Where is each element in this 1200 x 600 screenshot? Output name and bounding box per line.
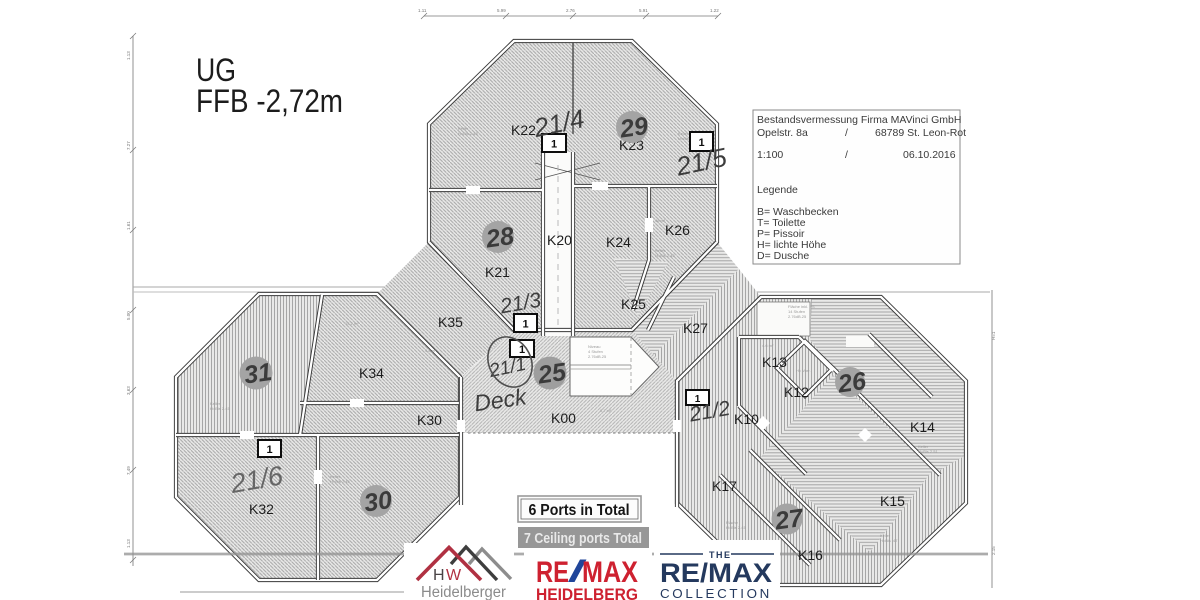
svg-text:RE/MAX: RE/MAX — [660, 558, 772, 588]
svg-text:2.76dB.25: 2.76dB.25 — [788, 314, 807, 319]
svg-text:26: 26 — [835, 367, 869, 399]
svg-text:H= Vorr.: H= Vorr. — [796, 368, 811, 373]
svg-text:2.76dB.25: 2.76dB.25 — [588, 354, 607, 359]
svg-text:K26: K26 — [665, 222, 690, 238]
svg-text:27: 27 — [772, 504, 806, 536]
svg-text:06.10.2016: 06.10.2016 — [903, 149, 956, 161]
svg-text:1.13: 1.13 — [126, 51, 131, 60]
svg-text:1.11: 1.11 — [418, 8, 427, 13]
svg-text:K34: K34 — [359, 365, 384, 381]
svg-text:FFB -2,72m: FFB -2,72m — [196, 83, 343, 119]
svg-text:15.2 m²: 15.2 m² — [345, 321, 359, 326]
svg-text:/: / — [845, 149, 848, 161]
svg-text:K16: K16 — [798, 547, 823, 563]
svg-text:K00: K00 — [551, 410, 576, 426]
svg-text:H=Bis 2.45: H=Bis 2.45 — [726, 525, 746, 530]
svg-text:K10: K10 — [734, 411, 759, 427]
svg-text:H=Bis .47: H=Bis .47 — [880, 538, 898, 543]
svg-text:29: 29 — [617, 112, 650, 144]
svg-text:/: / — [845, 127, 848, 139]
svg-text:K20: K20 — [547, 232, 572, 248]
svg-text:H=Bis 2.51: H=Bis 2.51 — [918, 449, 938, 454]
svg-text:Legende: Legende — [757, 184, 798, 196]
svg-text:K35: K35 — [438, 314, 463, 330]
svg-text:K24: K24 — [606, 234, 631, 250]
svg-text:K13: K13 — [762, 354, 787, 370]
svg-text:K32: K32 — [249, 501, 274, 517]
svg-text:6 Ports in Total: 6 Ports in Total — [529, 502, 630, 519]
svg-text:K14: K14 — [910, 419, 935, 435]
svg-text:1: 1 — [551, 139, 557, 151]
svg-text:K27: K27 — [683, 320, 708, 336]
svg-text:28: 28 — [483, 222, 516, 254]
svg-text:2.15: 2.15 — [991, 546, 996, 555]
svg-text:2.76: 2.76 — [566, 8, 575, 13]
svg-text:H: H — [433, 567, 445, 584]
svg-text:K25: K25 — [621, 296, 646, 312]
svg-text:K21: K21 — [485, 264, 510, 280]
svg-text:K15: K15 — [880, 493, 905, 509]
svg-text:4.6 m²: 4.6 m² — [762, 343, 774, 348]
svg-text:9.7 m²: 9.7 m² — [600, 408, 612, 413]
svg-text:Bestandsvermessung Firma MAVin: Bestandsvermessung Firma MAVinci GmbH — [757, 114, 961, 126]
svg-text:7.27: 7.27 — [126, 141, 131, 150]
svg-text:1:100: 1:100 — [757, 149, 783, 161]
svg-text:COLLECTION: COLLECTION — [660, 587, 772, 600]
svg-text:3.63: 3.63 — [126, 386, 131, 395]
svg-text:H=Bis 2.45: H=Bis 2.45 — [655, 253, 675, 258]
svg-text:68789 St. Leon-Rot: 68789 St. Leon-Rot — [875, 127, 966, 139]
svg-text:D= Dusche: D= Dusche — [757, 250, 809, 262]
svg-text:HEIDELBERG: HEIDELBERG — [536, 585, 638, 600]
svg-text:H=1: H=1 — [991, 331, 996, 340]
svg-text:25: 25 — [535, 358, 569, 390]
svg-text:K17: K17 — [712, 478, 737, 494]
svg-text:7.49: 7.49 — [126, 466, 131, 475]
svg-text:H=Bis 2.45: H=Bis 2.45 — [330, 479, 350, 484]
svg-text:5.91: 5.91 — [639, 8, 648, 13]
svg-text:7 Ceiling ports Total: 7 Ceiling ports Total — [524, 531, 642, 547]
svg-text:1.22: 1.22 — [710, 8, 719, 13]
svg-text:K22: K22 — [511, 122, 536, 138]
svg-text:5.00: 5.00 — [126, 311, 131, 320]
svg-text:1.61: 1.61 — [126, 221, 131, 230]
svg-text:K30: K30 — [417, 412, 442, 428]
svg-text:1: 1 — [522, 319, 528, 331]
svg-text:4.8 m²: 4.8 m² — [425, 348, 437, 353]
svg-text:5.99: 5.99 — [497, 8, 506, 13]
svg-text:Opelstr. 8a: Opelstr. 8a — [757, 127, 808, 139]
svg-text:1: 1 — [266, 444, 272, 456]
svg-text:2.81 m²: 2.81 m² — [585, 168, 599, 173]
svg-text:Heidelberger: Heidelberger — [421, 584, 506, 600]
svg-text:31: 31 — [242, 358, 273, 390]
svg-text:H=Bis 2.45: H=Bis 2.45 — [210, 406, 230, 411]
svg-text:30: 30 — [362, 486, 394, 518]
svg-text:1.13: 1.13 — [126, 539, 131, 548]
svg-text:W: W — [446, 567, 462, 584]
svg-text:H=Bis 2.45: H=Bis 2.45 — [458, 131, 478, 136]
svg-text:K12: K12 — [784, 384, 809, 400]
